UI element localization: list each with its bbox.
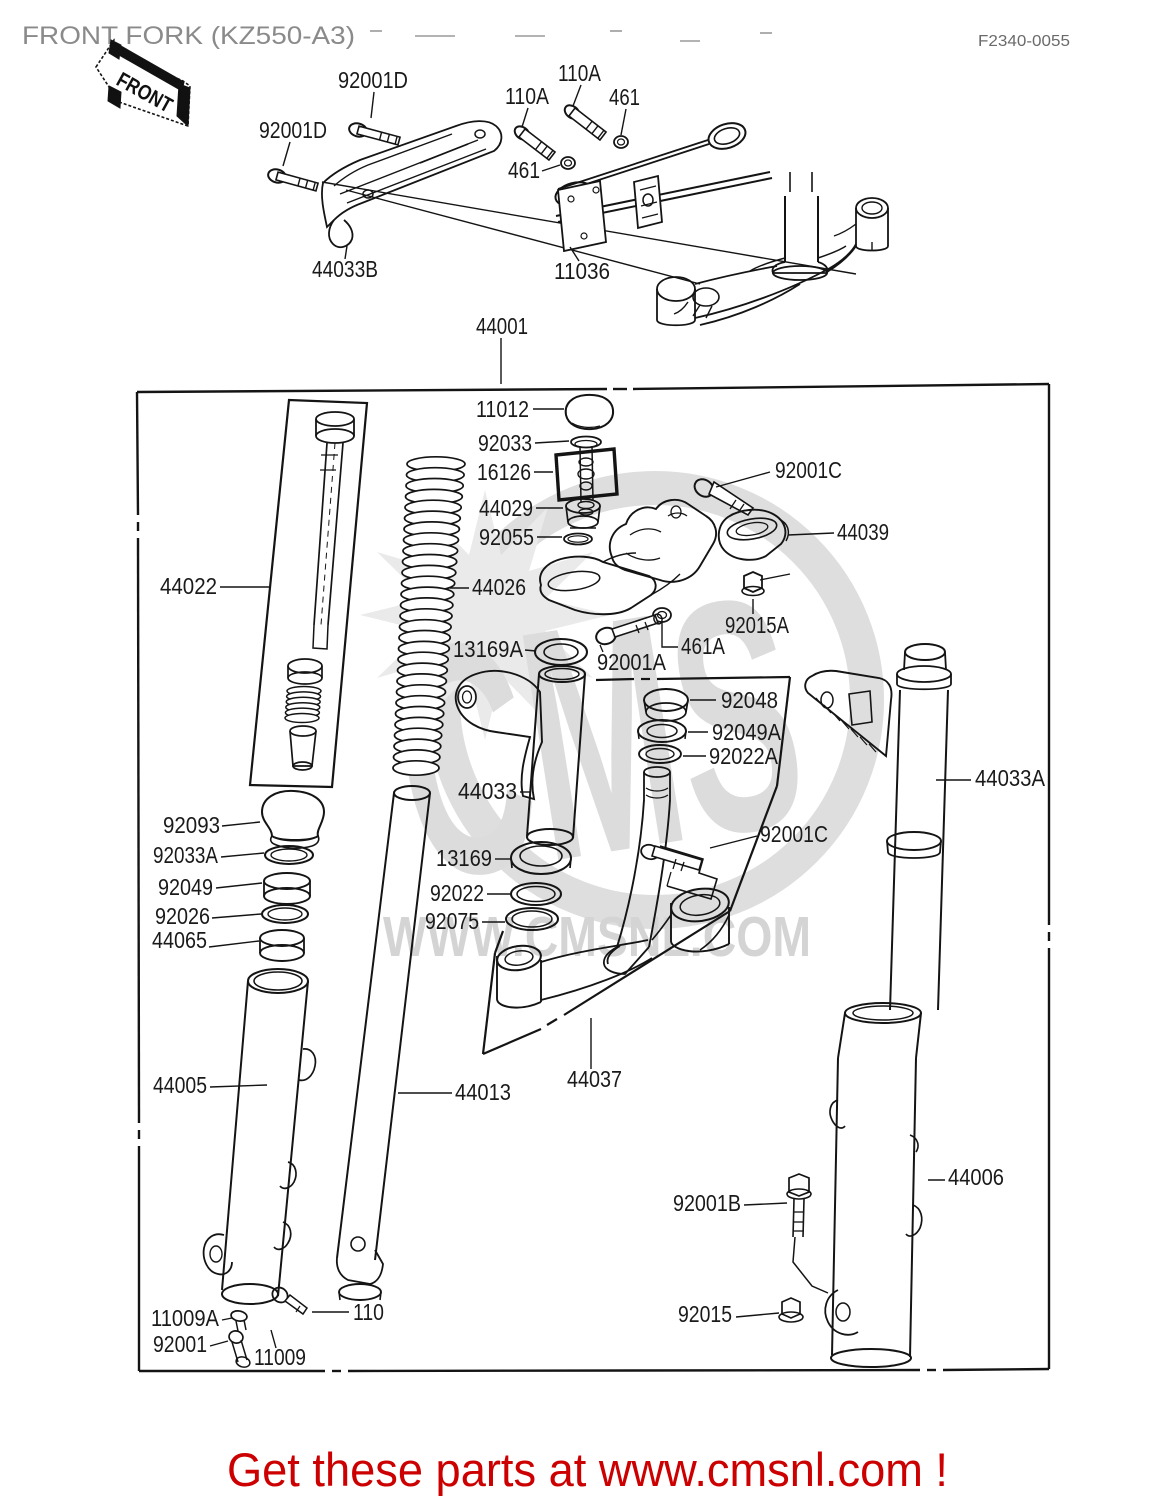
- svg-text:461A: 461A: [681, 633, 726, 659]
- svg-text:92033A: 92033A: [153, 842, 219, 868]
- svg-text:11036: 11036: [554, 258, 610, 284]
- svg-text:11009A: 11009A: [151, 1305, 220, 1331]
- svg-text:44037: 44037: [567, 1066, 622, 1092]
- svg-text:92048: 92048: [721, 687, 778, 713]
- svg-text:92075: 92075: [425, 908, 479, 934]
- svg-text:461: 461: [609, 84, 640, 110]
- svg-text:92033: 92033: [478, 430, 532, 456]
- svg-text:44001: 44001: [476, 313, 528, 339]
- svg-text:92049: 92049: [158, 874, 213, 900]
- svg-text:92001C: 92001C: [760, 821, 828, 847]
- svg-text:13169A: 13169A: [453, 636, 524, 662]
- svg-text:44006: 44006: [948, 1164, 1004, 1190]
- svg-text:13169: 13169: [436, 845, 492, 871]
- svg-text:92015: 92015: [678, 1301, 732, 1327]
- svg-text:92015A: 92015A: [725, 612, 790, 638]
- svg-text:110: 110: [353, 1299, 384, 1325]
- svg-text:92026: 92026: [155, 903, 210, 929]
- svg-text:11009: 11009: [254, 1344, 306, 1370]
- svg-text:44029: 44029: [479, 495, 533, 521]
- svg-text:44013: 44013: [455, 1079, 511, 1105]
- svg-text:92049A: 92049A: [712, 719, 782, 745]
- svg-text:92001D: 92001D: [338, 67, 408, 93]
- svg-text:44033A: 44033A: [975, 765, 1046, 791]
- svg-text:44026: 44026: [472, 574, 526, 600]
- svg-text:44033: 44033: [458, 778, 517, 804]
- svg-text:92001A: 92001A: [597, 649, 667, 675]
- svg-text:FRONT FORK (KZ550-A3): FRONT FORK (KZ550-A3): [22, 22, 355, 50]
- svg-text:92093: 92093: [163, 812, 220, 838]
- svg-text:92001C: 92001C: [775, 457, 842, 483]
- svg-text:F2340-0055: F2340-0055: [978, 33, 1070, 50]
- svg-text:92001B: 92001B: [673, 1190, 741, 1216]
- svg-text:11012: 11012: [476, 396, 529, 422]
- svg-text:92001: 92001: [153, 1331, 207, 1357]
- svg-text:92001D: 92001D: [259, 117, 327, 143]
- svg-text:44065: 44065: [152, 927, 207, 953]
- svg-text:Get these parts at www.cmsnl.c: Get these parts at www.cmsnl.com !: [227, 1443, 948, 1496]
- svg-text:44033B: 44033B: [312, 256, 378, 282]
- svg-text:110A: 110A: [505, 83, 550, 109]
- svg-text:16126: 16126: [477, 459, 531, 485]
- svg-text:92055: 92055: [479, 524, 534, 550]
- svg-text:44039: 44039: [837, 519, 889, 545]
- svg-text:110A: 110A: [558, 60, 602, 86]
- svg-text:92022A: 92022A: [709, 743, 779, 769]
- svg-text:44022: 44022: [160, 573, 217, 599]
- svg-text:92022: 92022: [430, 880, 484, 906]
- svg-text:461: 461: [508, 157, 540, 183]
- svg-text:44005: 44005: [153, 1072, 207, 1098]
